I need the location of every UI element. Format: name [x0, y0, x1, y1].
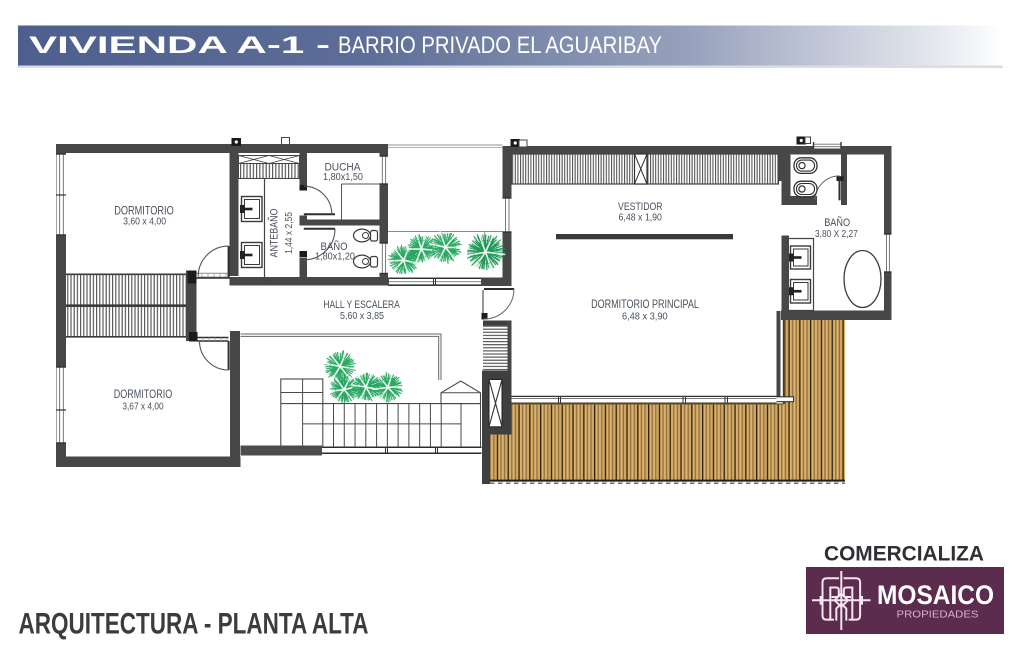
svg-text:1,80x1,50: 1,80x1,50 — [323, 172, 363, 183]
svg-text:COMERCIALIZA: COMERCIALIZA — [824, 543, 984, 566]
svg-text:6,48 x 1,90: 6,48 x 1,90 — [619, 211, 663, 223]
svg-text:1,44 x 2,55: 1,44 x 2,55 — [284, 212, 295, 254]
svg-text:ARQUITECTURA - PLANTA ALTA: ARQUITECTURA - PLANTA ALTA — [19, 608, 369, 641]
svg-text:ANTEBAÑO: ANTEBAÑO — [268, 208, 281, 257]
svg-text:MOSAICO: MOSAICO — [877, 580, 994, 610]
svg-text:6,48 x 3,90: 6,48 x 3,90 — [622, 311, 668, 323]
svg-text:HALL Y ESCALERA: HALL Y ESCALERA — [323, 299, 400, 311]
svg-text:3,67 x 4,00: 3,67 x 4,00 — [122, 401, 163, 413]
svg-text:VIVIENDA A-1 -: VIVIENDA A-1 - — [29, 32, 330, 59]
svg-text:3,60 x 4,00: 3,60 x 4,00 — [123, 216, 166, 228]
svg-text:BARRIO PRIVADO EL AGUARIBAY: BARRIO PRIVADO EL AGUARIBAY — [338, 32, 662, 59]
svg-text:1,80x1,20: 1,80x1,20 — [315, 252, 355, 263]
svg-text:DORMITORIO: DORMITORIO — [114, 389, 173, 401]
svg-text:BAÑO: BAÑO — [824, 216, 850, 229]
svg-text:3,80 X 2,27: 3,80 X 2,27 — [815, 229, 858, 240]
svg-text:5,60 x 3,85: 5,60 x 3,85 — [340, 310, 384, 322]
svg-text:PROPIEDADES: PROPIEDADES — [897, 610, 979, 621]
svg-text:DORMITORIO PRINCIPAL: DORMITORIO PRINCIPAL — [591, 299, 699, 311]
